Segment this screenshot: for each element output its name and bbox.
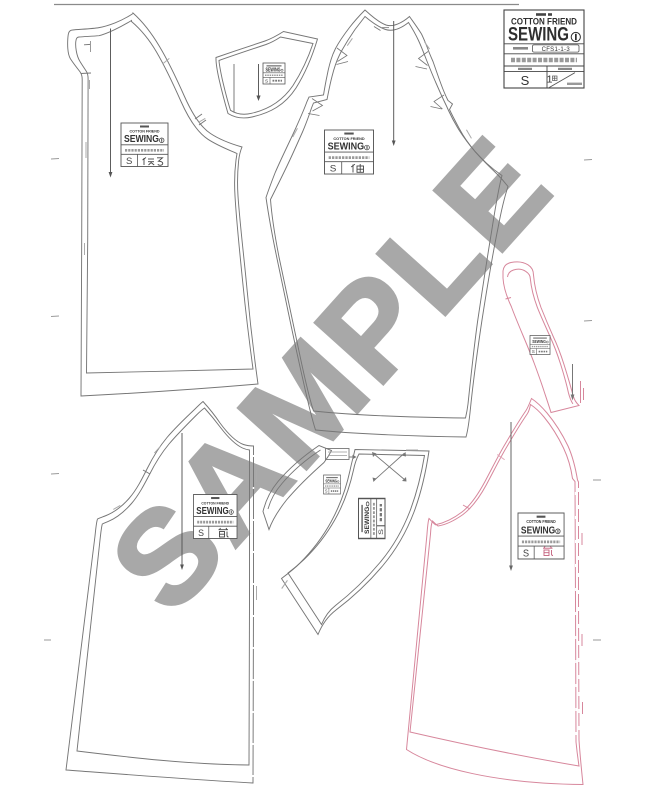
svg-text:1: 1 bbox=[547, 73, 553, 85]
svg-text:CFS1-1-3: CFS1-1-3 bbox=[542, 47, 571, 53]
svg-text:S: S bbox=[521, 73, 530, 88]
svg-text:SEWING: SEWING bbox=[508, 24, 569, 45]
